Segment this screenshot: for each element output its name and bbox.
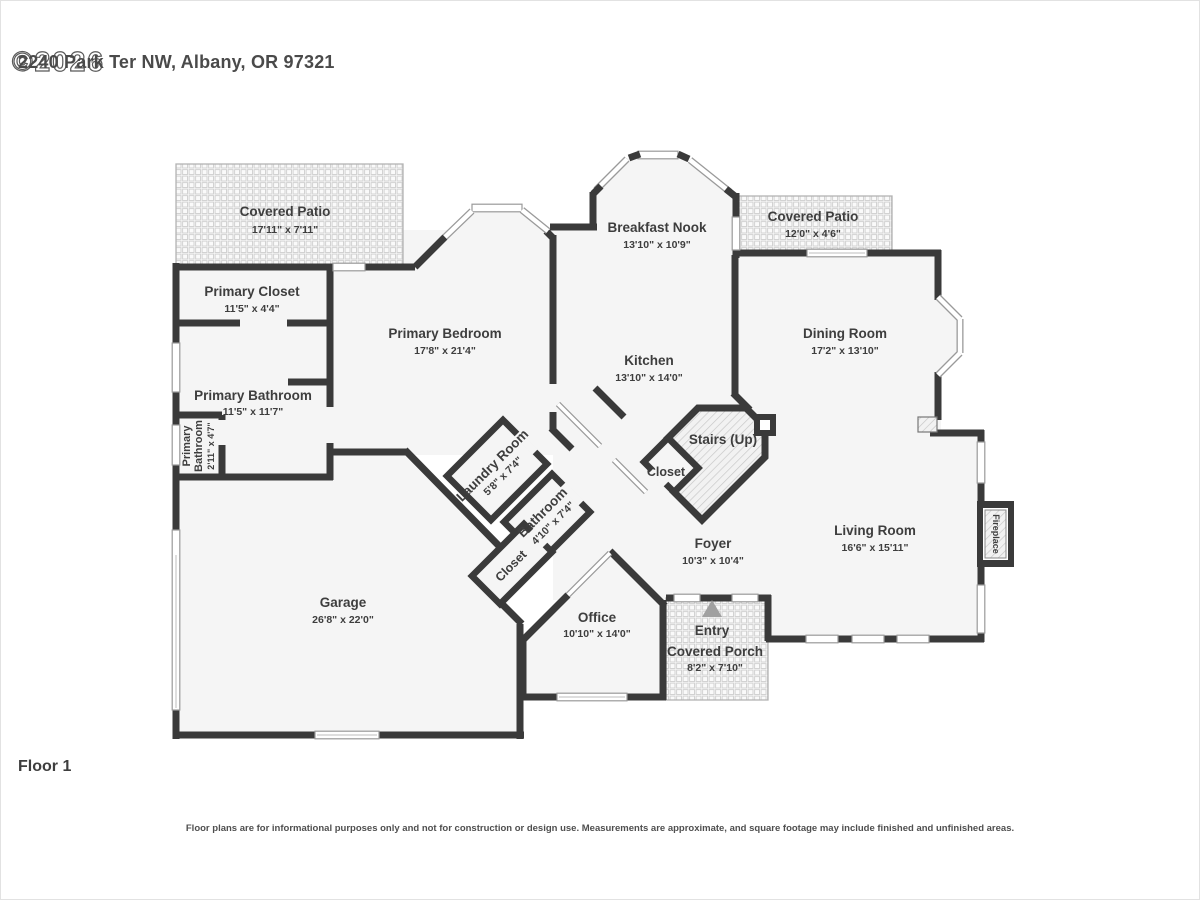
garage-dims: 26'8" x 22'0"	[312, 614, 374, 626]
primary-wc-label-group: Primary Bathroom 2'11" x 4'7"	[181, 420, 216, 472]
stairs-closet-label: Closet	[647, 465, 686, 479]
primary-bathroom-dims: 11'5" x 11'7"	[223, 406, 284, 418]
stairs-post	[754, 414, 776, 436]
primary-wc-label-1: Primary	[181, 425, 193, 467]
floor-plan-drawing: Covered Patio 17'11" x 7'11" Primary Clo…	[0, 0, 1200, 900]
office-dims: 10'10" x 14'0"	[563, 628, 631, 640]
entry-label: Entry	[695, 623, 730, 638]
primary-wc-label-2: Bathroom	[193, 420, 205, 472]
foyer-label: Foyer	[695, 536, 733, 551]
chimney	[918, 417, 937, 432]
floor-label: Floor 1	[18, 758, 71, 776]
primary-bedroom-dims: 17'8" x 21'4"	[414, 345, 476, 357]
breakfast-nook-label: Breakfast Nook	[607, 220, 707, 235]
floor-plan-page: ©2026 2240 Park Ter NW, Albany, OR 97321	[0, 0, 1200, 900]
primary-bathroom-label: Primary Bathroom	[194, 388, 312, 403]
foyer-dims: 10'3" x 10'4"	[682, 555, 744, 567]
covered-patio-left-label: Covered Patio	[240, 204, 331, 219]
kitchen-label: Kitchen	[624, 353, 674, 368]
breakfast-nook-dims: 13'10" x 10'9"	[623, 239, 691, 251]
covered-porch-dims: 8'2" x 7'10"	[687, 662, 743, 674]
primary-wc-dims: 2'11" x 4'7"	[206, 422, 216, 469]
stairs-label: Stairs (Up)	[689, 432, 757, 447]
office-label: Office	[578, 610, 617, 625]
covered-patio-right-dims: 12'0" x 4'6"	[785, 228, 841, 240]
primary-bedroom-label: Primary Bedroom	[388, 326, 501, 341]
fireplace-label: Fireplace	[991, 514, 1001, 554]
living-room-dims: 16'6" x 15'11"	[842, 542, 909, 554]
covered-patio-left-dims: 17'11" x 7'11"	[252, 224, 318, 236]
covered-porch-label: Covered Porch	[667, 644, 763, 659]
living-room-label: Living Room	[834, 523, 916, 538]
primary-closet-dims: 11'5" x 4'4"	[224, 303, 279, 315]
garage-label: Garage	[320, 595, 367, 610]
primary-closet-label: Primary Closet	[204, 284, 300, 299]
dining-room-label: Dining Room	[803, 326, 887, 341]
kitchen-dims: 13'10" x 14'0"	[615, 372, 683, 384]
covered-patio-right-area	[738, 196, 892, 253]
dining-room-dims: 17'2" x 13'10"	[811, 345, 879, 357]
disclaimer-text: Floor plans are for informational purpos…	[0, 823, 1200, 834]
covered-patio-right-label: Covered Patio	[768, 209, 859, 224]
